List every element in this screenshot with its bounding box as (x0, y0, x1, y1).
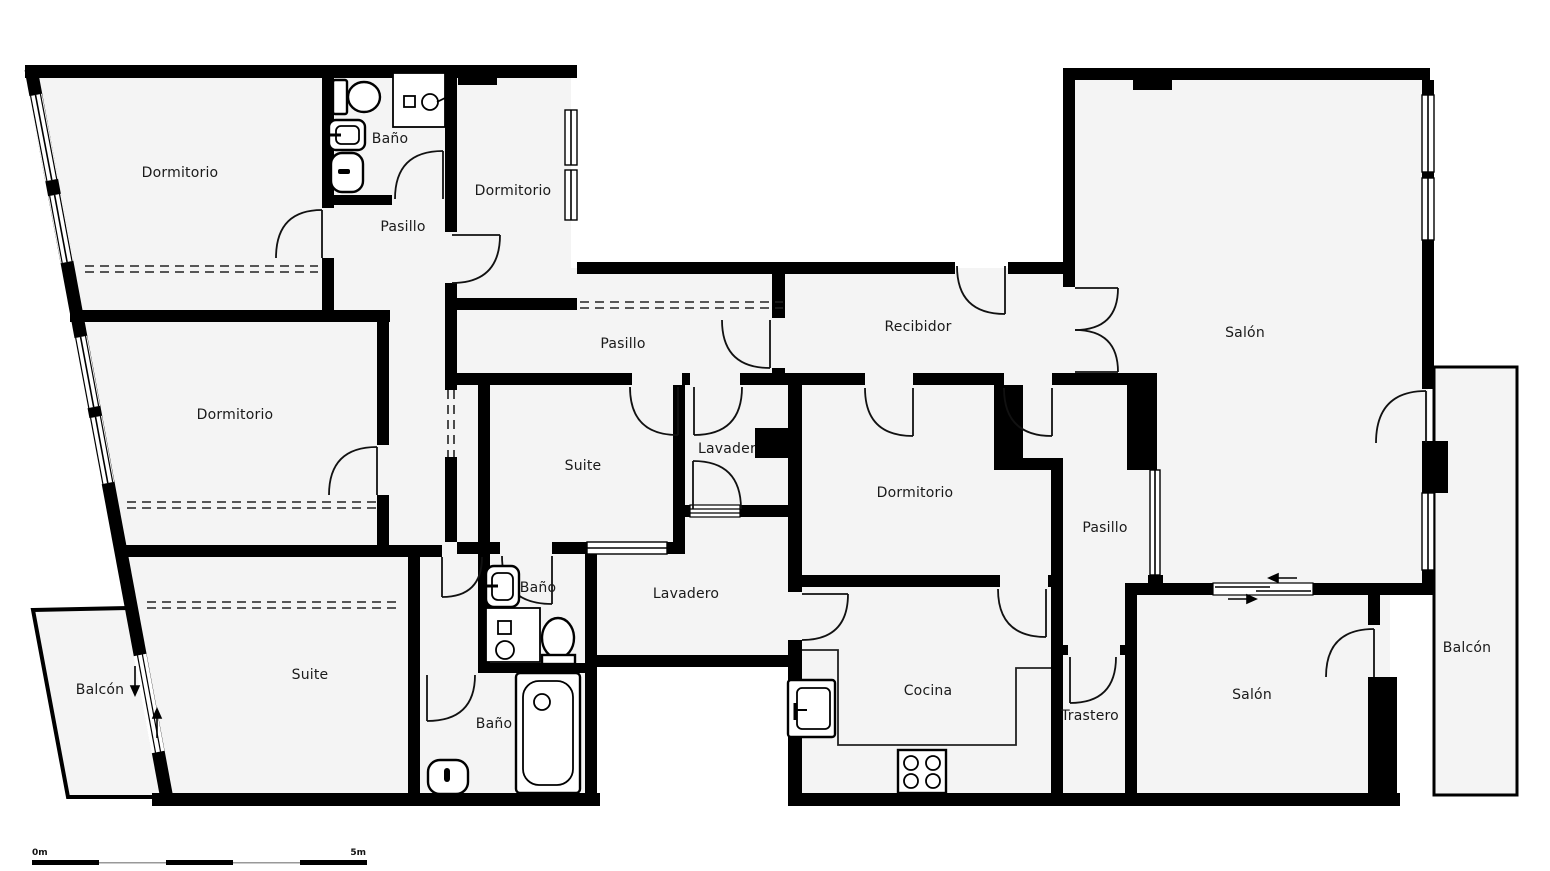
door-frame-lavadero-small (690, 505, 740, 517)
window-salon-3 (1422, 493, 1434, 570)
room-label-lavadero-small: Lavadero (698, 441, 764, 457)
room-label-recibidor: Recibidor (884, 319, 951, 335)
room-label-dormitorio-left: Dormitorio (197, 407, 274, 423)
room-label-pasillo-main: Pasillo (600, 336, 645, 352)
room-label-cocina: Cocina (904, 683, 953, 699)
window-salon-1 (1422, 95, 1434, 172)
scale-segment (99, 862, 166, 864)
scale-end-label: 5m (350, 848, 366, 858)
bidet-icon (428, 760, 468, 794)
scale-bar: 0m 5m (32, 848, 367, 865)
window-dorm-top-center-1 (565, 110, 577, 165)
room-label-trastero: Trastero (1060, 708, 1119, 724)
room-label-salon-main: Salón (1225, 325, 1265, 341)
scale-segment (32, 860, 99, 865)
room-label-dormitorio-top-center: Dormitorio (475, 183, 552, 199)
room-label-dormitorio-top-left: Dormitorio (142, 165, 219, 181)
wall-block-lavadero (755, 428, 797, 458)
scale-segment (233, 862, 300, 864)
window-dorm-top-center-2 (565, 170, 577, 220)
room-label-balcon-bottom-left: Balcón (76, 682, 124, 698)
room-label-salon-bottom: Salón (1232, 687, 1272, 703)
bidet-icon (331, 153, 363, 192)
room-label-balcon-right: Balcón (1443, 640, 1491, 656)
sliding-door-salones (1213, 583, 1313, 595)
shower-icon (486, 608, 540, 662)
room-label-bano-top: Baño (372, 131, 408, 147)
scale-segment (166, 860, 233, 865)
floor-plan-page: Dormitorio Baño Pasillo Dormitorio Pasil… (0, 0, 1550, 871)
room-label-dormitorio-center: Dormitorio (877, 485, 954, 501)
room-label-suite-middle: Suite (565, 458, 602, 474)
room-label-bano-bottom: Baño (476, 716, 512, 732)
scale-start-label: 0m (32, 848, 48, 858)
toilet-icon (542, 618, 575, 664)
kitchen-sink-icon (788, 680, 835, 737)
room-label-pasillo-right: Pasillo (1082, 520, 1127, 536)
window-suite-middle (587, 542, 667, 554)
toilet-icon (333, 80, 380, 114)
stove-icon (898, 750, 946, 793)
window-salon-2 (1422, 178, 1434, 240)
room-label-lavadero: Lavadero (653, 586, 719, 602)
room-label-suite-bottom: Suite (292, 667, 329, 683)
balcony-right-outline (1434, 367, 1517, 795)
floor-plan-canvas: Dormitorio Baño Pasillo Dormitorio Pasil… (0, 0, 1550, 871)
bathtub-icon (516, 673, 580, 793)
shower-icon (393, 73, 445, 127)
room-label-pasillo-top-left: Pasillo (380, 219, 425, 235)
sink-icon (486, 566, 519, 607)
floor-areas (31, 71, 1428, 800)
glass-partition-pasillo (1150, 470, 1160, 575)
room-label-bano-middle: Baño (520, 580, 556, 596)
scale-segment (300, 860, 367, 865)
sink-icon (329, 120, 365, 150)
